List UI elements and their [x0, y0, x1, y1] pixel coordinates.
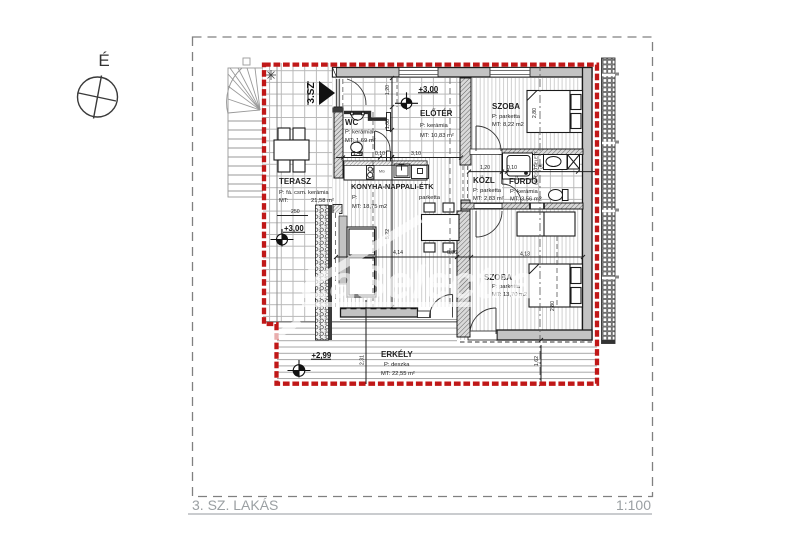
svg-text:2,80: 2,80 [550, 301, 556, 311]
svg-text:TERASZ: TERASZ [279, 177, 311, 186]
svg-text:1,62: 1,62 [534, 356, 540, 366]
svg-text:P: kerámia: P: kerámia [345, 130, 373, 136]
svg-text:P:: P: [352, 195, 358, 201]
svg-text:0,10: 0,10 [375, 151, 385, 157]
svg-text:P: deszka: P: deszka [384, 362, 410, 368]
svg-text:P: fá. csm. kerámia: P: fá. csm. kerámia [279, 190, 329, 196]
svg-text:É: É [98, 51, 109, 70]
svg-text:1:100: 1:100 [616, 497, 651, 513]
svg-text:P: kerámia: P: kerámia [510, 189, 538, 195]
svg-text:SZOBA: SZOBA [492, 102, 520, 111]
svg-text:3. SZ. LAKÁS: 3. SZ. LAKÁS [192, 497, 278, 513]
svg-text:P: parketta: P: parketta [473, 188, 502, 194]
svg-text:WC: WC [345, 118, 359, 127]
svg-text:MT:: MT: [279, 198, 289, 204]
svg-text:3,10: 3,10 [411, 151, 421, 157]
svg-text:+3,00: +3,00 [284, 224, 304, 233]
svg-text:MT: 1,69 m²: MT: 1,69 m² [345, 138, 376, 144]
svg-text:P: kerámia: P: kerámia [420, 123, 448, 129]
svg-text:0,10: 0,10 [507, 165, 517, 171]
svg-text:2,80: 2,80 [532, 108, 538, 118]
svg-text:1,75: 1,75 [533, 165, 543, 171]
svg-text:1,20: 1,20 [385, 85, 391, 95]
svg-text:ERKÉLY: ERKÉLY [381, 350, 413, 359]
svg-text:FÜRDŐ: FÜRDŐ [509, 177, 537, 186]
svg-text:MT: 8,22 m2: MT: 8,22 m2 [492, 122, 524, 128]
svg-text:+2,99: +2,99 [312, 351, 332, 360]
svg-text:MT: 2,83 m²: MT: 2,83 m² [473, 196, 504, 202]
svg-text:P: parketta: P: parketta [492, 114, 521, 120]
svg-text:ELŐTÉR: ELŐTÉR [420, 109, 453, 118]
svg-text:MT: 18,75 m2: MT: 18,75 m2 [352, 204, 387, 210]
svg-text:MT: 22,55 m²: MT: 22,55 m² [381, 371, 415, 377]
svg-text:KÖZL: KÖZL [473, 176, 495, 185]
svg-text:MT: 10,83 m²: MT: 10,83 m² [420, 133, 454, 139]
svg-text:250: 250 [291, 209, 300, 215]
svg-text:1,08: 1,08 [385, 119, 391, 129]
svg-text:1,40: 1,40 [353, 151, 363, 157]
svg-text:KONYHA-NAPPALI-ÉTK: KONYHA-NAPPALI-ÉTK [351, 182, 434, 191]
svg-text:MT: 3,56 m2: MT: 3,56 m2 [510, 197, 542, 203]
svg-text:parketta: parketta [419, 195, 441, 201]
svg-text:21,58 m²: 21,58 m² [311, 198, 334, 204]
svg-text:1,20: 1,20 [480, 165, 490, 171]
svg-text:MG: MG [379, 170, 385, 174]
svg-text:2,31: 2,31 [360, 355, 366, 365]
